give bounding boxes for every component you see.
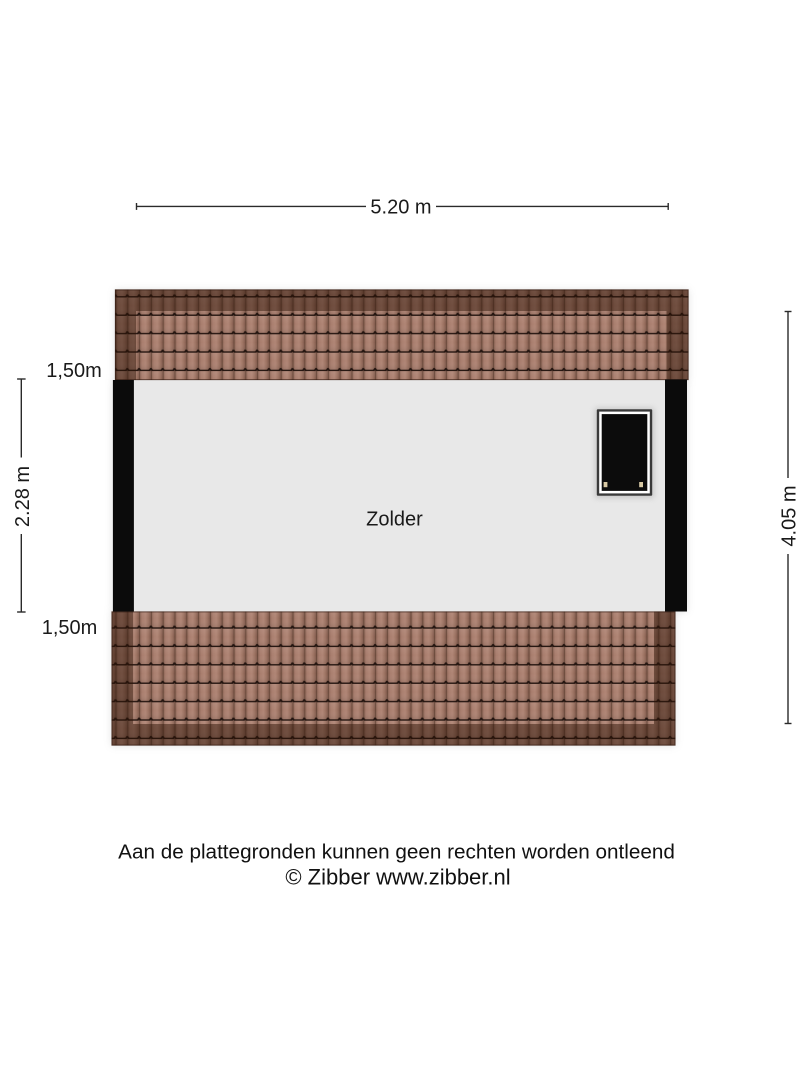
svg-text:Aan de plattegronden kunnen ge: Aan de plattegronden kunnen geen rechten…	[118, 841, 675, 864]
svg-text:Zolder: Zolder	[366, 509, 423, 531]
svg-text:4.05 m: 4.05 m	[779, 485, 801, 546]
svg-text:1,50m: 1,50m	[42, 617, 98, 639]
svg-text:5.20 m: 5.20 m	[370, 197, 431, 219]
svg-text:2.28 m: 2.28 m	[12, 466, 34, 527]
svg-text:© Zibber www.zibber.nl: © Zibber www.zibber.nl	[285, 865, 510, 890]
svg-text:1,50m: 1,50m	[46, 360, 102, 382]
